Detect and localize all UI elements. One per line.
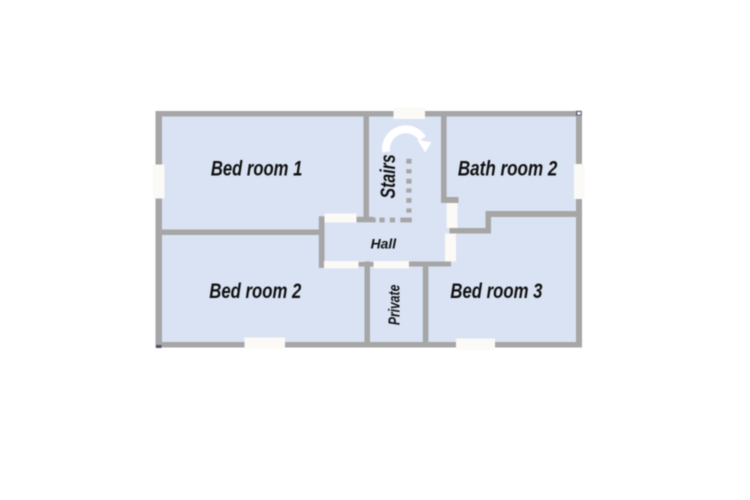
svg-text:Bath room 2: Bath room 2 xyxy=(458,157,558,180)
svg-text:Bed room 2: Bed room 2 xyxy=(209,280,301,303)
svg-text:Bed room 1: Bed room 1 xyxy=(211,157,303,180)
svg-text:Private: Private xyxy=(387,284,404,325)
svg-text:Stairs: Stairs xyxy=(377,154,400,198)
svg-text:Hall: Hall xyxy=(371,235,398,251)
svg-text:Bed room 3: Bed room 3 xyxy=(450,280,542,303)
